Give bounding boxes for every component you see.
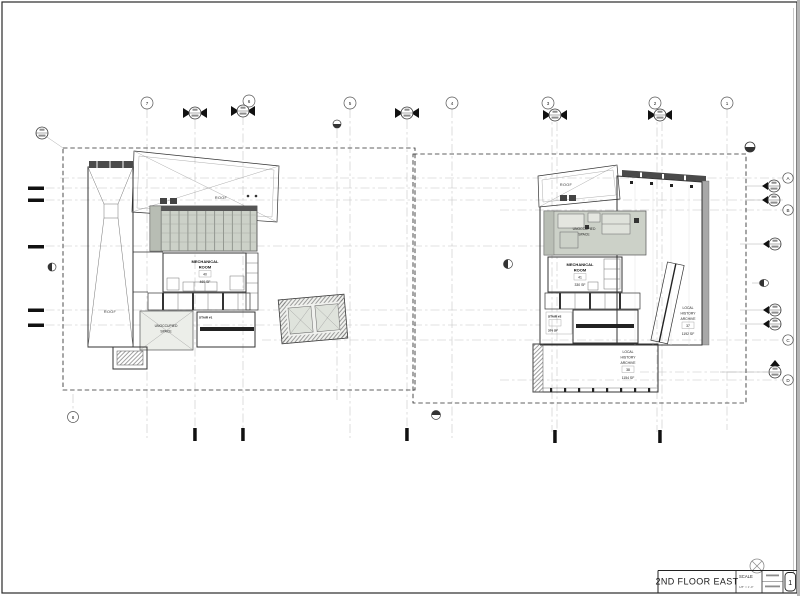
archive-e-area: 1192 SF — [682, 332, 695, 336]
grid-bubble-B: B — [783, 205, 793, 215]
datum-marker-bottom — [432, 411, 441, 420]
svg-text:8: 8 — [72, 415, 75, 420]
archive-e-label-1: LOCAL — [682, 306, 693, 310]
grid-bubble-C: C — [783, 335, 793, 345]
right-mech-label-2: ROOM — [574, 268, 587, 273]
scale-label: SCALE — [739, 574, 753, 579]
right-unoccupied-label-2: SPACE — [578, 233, 590, 237]
left-mech-label-1: MECHANICAL — [192, 259, 219, 264]
right-unoccupied-label-1: UNOCCUPIED — [573, 227, 596, 231]
right-stair-area: 376 SF — [548, 329, 558, 333]
grid-bubble-5: 5 — [344, 97, 356, 109]
svg-text:2: 2 — [654, 101, 657, 106]
left-mech-area: 460 SF — [200, 280, 211, 284]
left-louver-band — [150, 198, 257, 251]
svg-text:4: 4 — [451, 101, 454, 106]
archive-s-number: 38 — [626, 368, 630, 372]
archive-s-label-2: HISTORY — [621, 356, 637, 360]
right-roof-label: ROOF — [560, 183, 573, 187]
sheet-number: 1 — [788, 580, 792, 587]
left-unoccupied-label-2: SPACE — [160, 330, 172, 334]
svg-text:1: 1 — [726, 101, 729, 106]
left-stair-label: STAIR #1 — [199, 316, 213, 320]
archive-s-label-3: ARCHIVE — [620, 361, 636, 365]
datum-marker-mid-top — [333, 120, 341, 128]
svg-text:6: 6 — [248, 99, 251, 104]
grid-bubble-4: 4 — [446, 97, 458, 109]
tilted-skylight-structure — [278, 294, 348, 344]
right-stair-label: STAIR #2 — [548, 315, 562, 319]
datum-marker-center — [504, 260, 513, 269]
svg-text:B: B — [786, 208, 789, 213]
callout-marker-top-right — [745, 142, 755, 152]
grid-bubble-1: 1 — [721, 97, 733, 109]
left-mech-label-2: ROOM — [199, 265, 212, 270]
sheet-title: 2ND FLOOR EAST — [655, 577, 738, 587]
archive-e-number: 37 — [686, 324, 690, 328]
svg-text:7: 7 — [146, 101, 149, 106]
left-canopy-label: ROOF — [215, 196, 228, 200]
archive-s-label-1: LOCAL — [622, 350, 633, 354]
archive-e-label-3: ARCHIVE — [680, 317, 696, 321]
drawing-sheet: ROOF ROOF MECHANICAL ROOM 40 460 SF — [0, 0, 800, 596]
grid-bubble-8-bottom: 8 — [68, 412, 79, 423]
archive-s-area: 1154 SF — [622, 376, 635, 380]
grid-bubble-A: A — [783, 173, 793, 183]
left-mech-number: 40 — [203, 273, 207, 277]
grid-bubble-D: D — [783, 375, 793, 385]
svg-text:5: 5 — [349, 101, 352, 106]
sheet-border — [2, 0, 800, 596]
grid-bubble-7: 7 — [141, 97, 153, 109]
right-unoccupied-equipment-zone: UNOCCUPIED SPACE — [544, 211, 646, 255]
svg-text:3: 3 — [547, 101, 550, 106]
left-unoccupied-space: UNOCCUPIED SPACE — [140, 311, 193, 350]
floor-plan-drawing: ROOF ROOF MECHANICAL ROOM 40 460 SF — [0, 0, 800, 596]
right-mech-label-1: MECHANICAL — [567, 262, 594, 267]
right-mech-number: 41 — [578, 276, 582, 280]
archive-e-label-2: HISTORY — [681, 312, 697, 316]
right-mech-area: 330 SF — [575, 283, 586, 287]
scale-value: 1/8" = 1'-0" — [739, 585, 754, 589]
datum-marker-left — [48, 263, 56, 271]
left-unoccupied-label-1: UNOCCUPIED — [155, 324, 178, 328]
left-roof-strip-label: ROOF — [104, 310, 117, 314]
